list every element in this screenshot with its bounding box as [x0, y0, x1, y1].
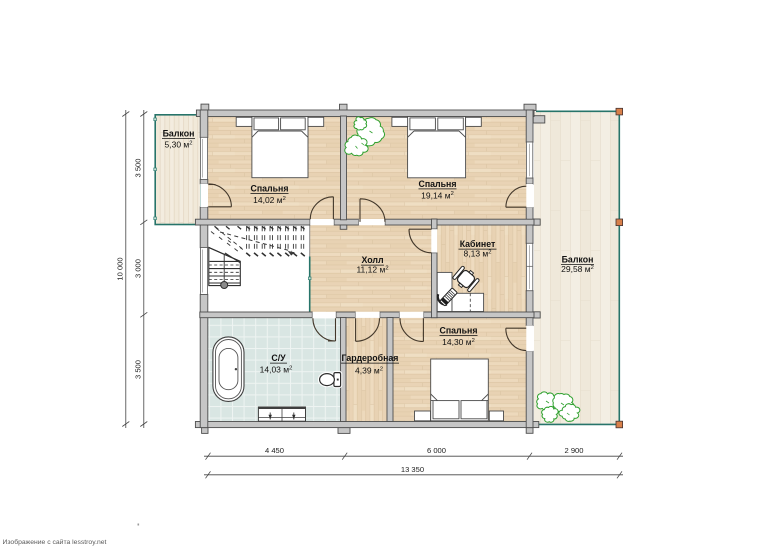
svg-text:3 500: 3 500: [134, 158, 143, 177]
svg-text:11,12 м2: 11,12 м2: [356, 265, 388, 275]
svg-text:3 500: 3 500: [134, 360, 143, 379]
svg-text:Балкон: Балкон: [562, 255, 594, 265]
svg-text:14,03 м2: 14,03 м2: [260, 365, 293, 375]
svg-text:Кабинет: Кабинет: [460, 239, 496, 249]
svg-text:4 450: 4 450: [265, 446, 284, 455]
svg-text:2 900: 2 900: [564, 446, 583, 455]
svg-text:10 000: 10 000: [116, 257, 125, 280]
svg-text:6 000: 6 000: [427, 446, 446, 455]
svg-text:14,30 м2: 14,30 м2: [442, 337, 475, 347]
svg-text:19,14 м2: 19,14 м2: [421, 190, 454, 200]
svg-text:8,13 м2: 8,13 м2: [464, 249, 492, 259]
svg-text:Спальня: Спальня: [250, 184, 288, 194]
svg-text:Холл: Холл: [361, 255, 383, 265]
svg-text:С/У: С/У: [271, 353, 286, 363]
svg-text:Спальня: Спальня: [418, 179, 456, 189]
svg-text:13 350: 13 350: [401, 465, 424, 474]
svg-text:Балкон: Балкон: [163, 129, 195, 139]
svg-text:4,39 м2: 4,39 м2: [355, 366, 383, 376]
svg-text:29,58 м2: 29,58 м2: [561, 264, 594, 274]
svg-text:Изображение с сайта lesstroy.n: Изображение с сайта lesstroy.net: [3, 538, 107, 546]
svg-text:14,02 м2: 14,02 м2: [253, 195, 286, 205]
svg-text:Спальня: Спальня: [439, 326, 477, 336]
svg-text:3 000: 3 000: [134, 259, 143, 278]
svg-text:5,30 м2: 5,30 м2: [165, 140, 193, 150]
svg-text:Гардеробная: Гардеробная: [342, 353, 399, 363]
